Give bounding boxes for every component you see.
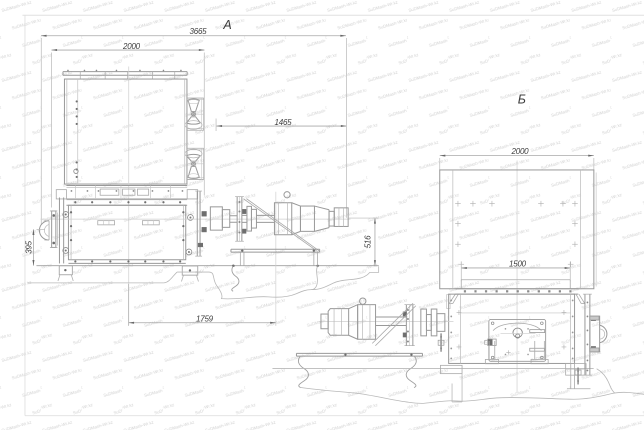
svg-text:395: 395 (24, 240, 33, 253)
svg-text:2000: 2000 (122, 42, 141, 51)
svg-text:3665: 3665 (190, 27, 208, 36)
svg-text:Б: Б (518, 92, 526, 106)
svg-text:1759: 1759 (196, 314, 214, 323)
svg-text:516: 516 (364, 235, 373, 248)
svg-text:А: А (222, 18, 231, 32)
svg-text:1465: 1465 (275, 118, 293, 127)
svg-text:2000: 2000 (511, 147, 530, 156)
svg-text:1500: 1500 (509, 260, 527, 269)
